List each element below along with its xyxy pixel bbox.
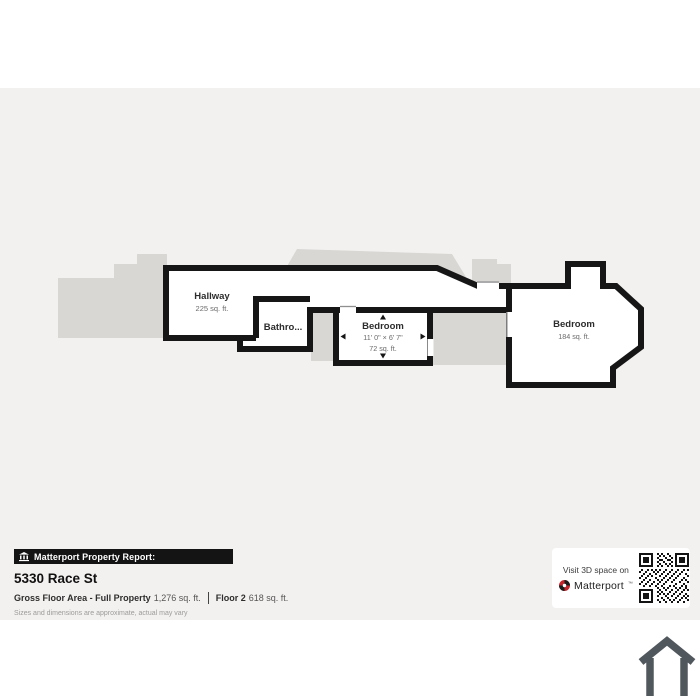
door-opening <box>428 339 434 356</box>
door-opening <box>508 312 514 337</box>
hallway-label: Hallway <box>194 291 230 302</box>
floor-area-line: Gross Floor Area - Full Property 1,276 s… <box>14 592 314 604</box>
visit-text: Visit 3D space on <box>563 565 629 575</box>
gross-area-value: 1,276 sq. ft. <box>154 593 201 603</box>
gross-area-label: Gross Floor Area - Full Property <box>14 593 151 603</box>
report-title-bar: Matterport Property Report: <box>14 549 233 564</box>
bathroom-label: Bathro... <box>264 322 303 333</box>
bedroom-small-dims: 11' 0" × 6' 7" <box>363 333 403 342</box>
floor-label: Floor 2 <box>216 593 246 603</box>
qr-code <box>639 553 689 603</box>
property-report-block: Matterport Property Report: 5330 Race St… <box>14 549 314 617</box>
door-opening <box>477 281 499 291</box>
house-icon <box>634 632 700 700</box>
bedroom-large-label: Bedroom <box>553 319 595 330</box>
bedroom-large-area: 184 sq. ft. <box>558 332 590 341</box>
hallway-area: 225 sq. ft. <box>196 304 229 313</box>
building-icon <box>19 552 29 562</box>
matterport-logo-icon <box>559 580 570 591</box>
trademark-symbol: ™ <box>628 581 633 587</box>
property-address: 5330 Race St <box>14 571 314 586</box>
visit-3d-box: Visit 3D space on Matterport ™ <box>552 548 690 608</box>
matterport-wordmark: Matterport <box>574 580 624 592</box>
report-bar-label: Matterport Property Report: <box>34 552 155 562</box>
bedroom-small-area: 72 sq. ft. <box>369 344 397 353</box>
disclaimer-text: Sizes and dimensions are approximate, ac… <box>14 610 314 617</box>
bedroom-small-label: Bedroom <box>362 321 404 332</box>
floor-value: 618 sq. ft. <box>249 593 289 603</box>
divider <box>208 592 209 604</box>
